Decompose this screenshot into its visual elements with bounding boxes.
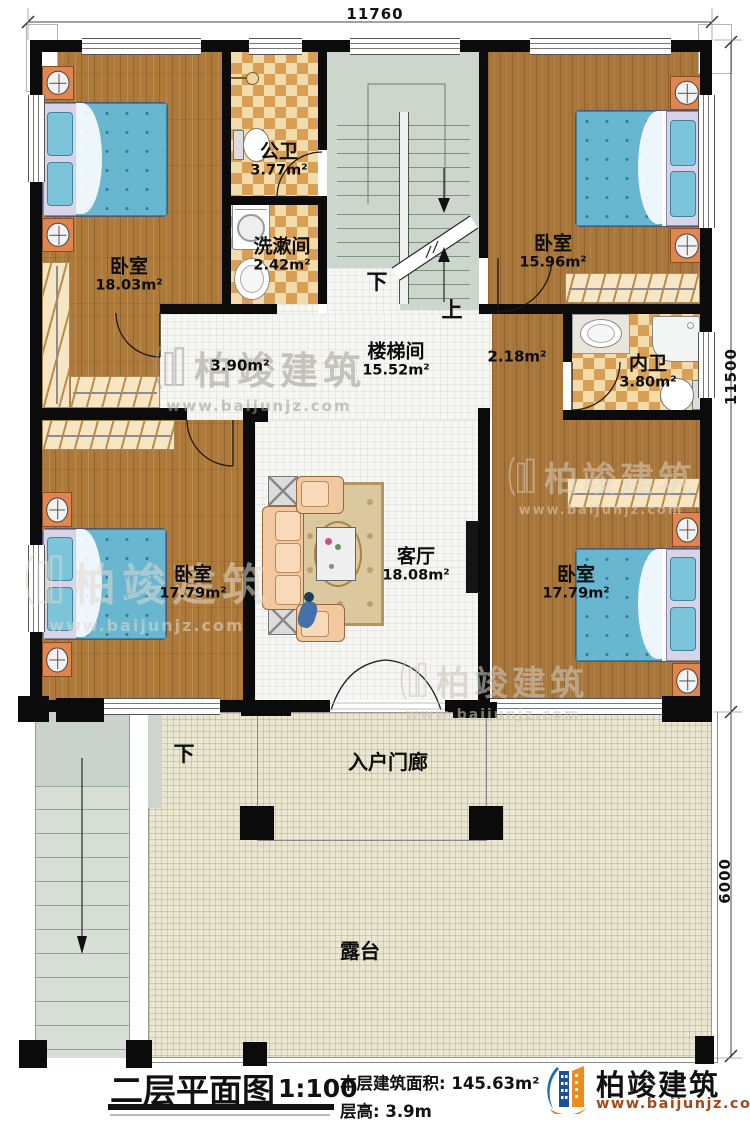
floor-height-label: 层高: — [340, 1102, 380, 1121]
room-name: 卧室 — [159, 564, 226, 585]
nightstand — [670, 228, 704, 263]
room-area: 17.79m² — [159, 586, 226, 602]
room-label-porch: 入户门廊 — [348, 751, 428, 773]
wall-segment — [30, 182, 42, 545]
room-name: 内卫 — [619, 353, 676, 374]
title-underline-thin — [110, 1114, 330, 1116]
wall-segment — [160, 304, 231, 314]
pillow — [670, 607, 696, 651]
dimension-top: 11760 — [346, 5, 403, 23]
lamp-icon — [46, 647, 68, 672]
room-area: 18.08m² — [382, 568, 449, 584]
wall-segment — [460, 40, 530, 52]
dimension-right-lower: 6000 — [716, 858, 734, 904]
company-logo-icon — [542, 1062, 590, 1114]
column — [240, 806, 274, 840]
room-name: 卧室 — [95, 256, 162, 277]
wardrobe-rail — [569, 288, 697, 290]
floor-hallway — [277, 304, 318, 314]
floor-height-line: 层高: 3.9m — [340, 1098, 432, 1122]
wall-segment — [563, 410, 712, 420]
column — [662, 696, 712, 722]
wardrobe-rail — [46, 435, 172, 437]
column — [469, 806, 503, 840]
room-label-stairwell: 楼梯间 15.52m² — [362, 341, 429, 379]
wardrobe — [42, 262, 70, 408]
wall-segment — [318, 52, 327, 150]
stair-up-label: 上 — [442, 294, 463, 324]
wall-segment — [479, 304, 712, 314]
shower-arm — [231, 77, 247, 79]
room-label-bedroom-br: 卧室 17.79m² — [542, 564, 609, 602]
lamp-icon — [46, 497, 68, 522]
tv — [466, 521, 478, 593]
room-label-hall-right: 2.18m² — [487, 349, 546, 366]
lamp-icon — [676, 517, 698, 542]
wardrobe — [567, 478, 700, 508]
wardrobe-rail — [73, 392, 158, 394]
wall-segment — [243, 408, 255, 712]
nightstand — [672, 512, 702, 547]
room-area: 2.42m² — [253, 258, 310, 274]
pillow — [47, 587, 73, 631]
wall-segment — [318, 196, 327, 304]
sofa-cushion — [275, 511, 301, 541]
room-label-ensuite: 内卫 3.80m² — [619, 353, 676, 391]
pillow — [47, 162, 73, 206]
bed — [42, 528, 167, 640]
exterior-stair-steps — [36, 786, 129, 1058]
wall-segment — [479, 52, 488, 258]
room-label-living: 客厅 18.08m² — [382, 546, 449, 584]
room-label-public-bath: 公卫 3.77m² — [250, 141, 307, 179]
table-decor — [325, 538, 332, 545]
wall-segment — [255, 408, 268, 422]
stair-steps-left — [337, 201, 399, 268]
lamp-icon — [47, 223, 70, 247]
wardrobe — [42, 420, 175, 450]
window — [28, 545, 45, 632]
person-figure — [304, 592, 314, 602]
column — [453, 702, 497, 718]
lamp-icon — [47, 71, 70, 95]
sofa-cushion — [301, 481, 329, 507]
lamp-icon — [675, 233, 699, 258]
company-website: www.baijunjz.com — [596, 1096, 750, 1112]
room-area: 15.52m² — [362, 363, 429, 379]
title-underline — [108, 1104, 334, 1110]
room-name: 入户门廊 — [348, 751, 428, 773]
nightstand — [42, 642, 72, 677]
pillow — [670, 120, 696, 166]
wall-segment — [700, 40, 712, 95]
threshold-line — [330, 703, 445, 709]
coffee-table — [316, 527, 356, 581]
window — [350, 38, 460, 55]
washbasin — [580, 319, 622, 348]
column — [243, 1042, 267, 1066]
table-decor — [335, 544, 341, 550]
room-name: 客厅 — [382, 546, 449, 567]
wall-segment — [30, 40, 42, 95]
stair-steps-right — [407, 201, 470, 308]
room-area: 15.96m² — [519, 255, 586, 271]
logo-swoosh-orange — [550, 1107, 587, 1114]
stair-rail — [399, 112, 409, 304]
wall-segment — [563, 314, 572, 362]
logo-swoosh-blue — [547, 1067, 559, 1109]
window — [698, 332, 715, 398]
floor-area-line: 本层建筑面积: 145.63m² — [340, 1070, 539, 1094]
wall-segment — [700, 398, 712, 712]
sofa — [262, 506, 304, 610]
pillow — [670, 557, 696, 601]
wall-segment — [30, 408, 187, 420]
column — [19, 1040, 47, 1068]
window — [249, 38, 302, 55]
column — [695, 1036, 714, 1064]
room-label-hall-left: 3.90m² — [210, 358, 269, 375]
room-name: 卧室 — [519, 233, 586, 254]
room-label-washroom: 洗漱间 2.42m² — [253, 236, 310, 274]
wall-segment — [478, 408, 490, 712]
exterior-stair-landing — [36, 712, 129, 787]
nightstand — [42, 492, 72, 527]
floor-hall-wood — [492, 314, 563, 420]
window — [530, 38, 671, 55]
room-name: 公卫 — [250, 141, 307, 162]
pillow — [47, 537, 73, 581]
window — [103, 698, 220, 715]
window — [698, 95, 715, 228]
floor-plan: 卧室 18.03m² 公卫 3.77m² 洗漱间 2.42m² 楼梯间 15.5… — [0, 0, 750, 1128]
dimension-tick — [725, 36, 737, 1062]
column — [18, 696, 49, 722]
bed — [42, 102, 168, 217]
logo-building-orange — [572, 1066, 584, 1107]
table-decor — [329, 564, 334, 569]
wall-segment — [222, 52, 231, 304]
room-name: 露台 — [340, 940, 380, 962]
room-area: 2.18m² — [487, 349, 546, 366]
wall-segment — [700, 228, 712, 332]
pillow — [670, 171, 696, 217]
window — [28, 95, 45, 182]
floor-height-value: 3.9m — [385, 1102, 431, 1121]
floor-area-value: 145.63m² — [451, 1074, 539, 1093]
nightstand — [42, 218, 74, 252]
room-area: 18.03m² — [95, 278, 162, 294]
exterior-stair — [35, 712, 130, 1058]
wardrobe-rail — [571, 493, 697, 495]
room-area: 17.79m² — [542, 586, 609, 602]
room-label-bedroom-tl: 卧室 18.03m² — [95, 256, 162, 294]
bed — [575, 110, 702, 227]
stair-down-label: 下 — [367, 266, 388, 296]
lamp-icon — [676, 668, 698, 693]
column — [241, 700, 291, 716]
window — [82, 38, 201, 55]
room-area: 3.90m² — [210, 358, 269, 375]
stair-landing-ext — [148, 712, 162, 808]
room-label-terrace: 露台 — [340, 940, 380, 962]
slab-gutter — [130, 712, 149, 1058]
room-label-bedroom-tr: 卧室 15.96m² — [519, 233, 586, 271]
porch-line — [257, 840, 487, 841]
wardrobe — [70, 376, 160, 408]
nightstand — [672, 663, 702, 698]
wall-segment — [302, 40, 350, 52]
wall-segment — [231, 304, 277, 314]
room-name: 洗漱间 — [253, 236, 310, 257]
side-table — [268, 476, 298, 506]
terrace-slab — [148, 712, 712, 1058]
room-name: 卧室 — [542, 564, 609, 585]
wardrobe — [565, 273, 700, 303]
sofa-cushion — [275, 543, 301, 573]
column — [56, 698, 104, 722]
wall-segment — [231, 196, 318, 205]
room-name: 楼梯间 — [362, 341, 429, 362]
room-area: 3.77m² — [250, 163, 307, 179]
porch-stair-down-label: 下 — [174, 738, 195, 768]
armchair — [296, 476, 344, 514]
washbasin-bowl — [587, 324, 615, 343]
room-label-bedroom-bl: 卧室 17.79m² — [159, 564, 226, 602]
window — [490, 698, 670, 715]
floor-area-label: 本层建筑面积: — [340, 1074, 446, 1093]
wall-segment — [201, 40, 249, 52]
sofa-cushion — [275, 575, 301, 605]
room-area: 3.80m² — [619, 375, 676, 391]
wardrobe-rail — [56, 266, 58, 404]
shower-head-icon — [246, 72, 259, 85]
pillow — [47, 112, 73, 156]
extension-line — [714, 40, 742, 1058]
washing-machine-panel — [235, 209, 267, 210]
lamp-icon — [675, 81, 699, 105]
nightstand — [42, 66, 74, 100]
dimension-right-upper: 11500 — [722, 348, 740, 405]
shower-drain — [687, 322, 694, 329]
